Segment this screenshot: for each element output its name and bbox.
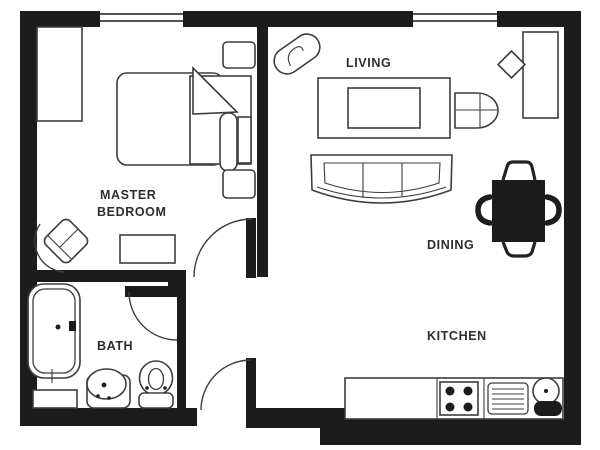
room-kitchen: KITCHEN — [345, 329, 563, 419]
wall-bottom-kitchen — [320, 419, 581, 445]
toilet-tank — [139, 393, 173, 408]
tub-faucet — [69, 321, 76, 331]
wall-top-middle — [183, 11, 413, 27]
bedroom-door — [194, 218, 256, 278]
nightstand-top — [223, 42, 255, 68]
label-dining: DINING — [427, 238, 474, 252]
burner — [446, 387, 455, 396]
stove — [440, 382, 478, 415]
bath-mat — [33, 390, 77, 408]
label-living: LIVING — [346, 56, 391, 70]
label-bath: BATH — [97, 339, 133, 353]
burner — [464, 403, 473, 412]
dining-chair-bottom — [503, 242, 535, 256]
drainer — [488, 383, 528, 414]
nightstand-bottom — [223, 170, 255, 198]
tub-drain — [56, 325, 61, 330]
burner — [446, 403, 455, 412]
pedestal-sink — [87, 369, 130, 408]
label-kitchen: KITCHEN — [427, 329, 487, 343]
bathroom-door — [125, 286, 180, 340]
bedroom-door-panel — [246, 218, 256, 278]
entry-door-panel — [246, 358, 256, 410]
label-master-bedroom-line1: MASTER — [100, 188, 156, 202]
room-bath: BATH — [28, 284, 173, 408]
bedroom-door-swing-arc — [194, 219, 252, 277]
sofa — [311, 155, 452, 203]
double-bed — [117, 68, 251, 171]
kitchen-sink — [533, 378, 562, 416]
bathroom-door-swing-arc — [129, 292, 177, 340]
bed-pillow — [220, 113, 237, 171]
living-armchair — [455, 93, 498, 128]
bedroom-armchair — [35, 217, 90, 272]
wall-bottom-bath — [20, 408, 197, 426]
wall-bedroom-bath — [20, 270, 180, 282]
ottoman — [120, 235, 175, 263]
dining-chair-right — [547, 197, 559, 223]
plant — [269, 29, 325, 79]
wall-right — [564, 11, 581, 445]
living-window — [413, 14, 497, 21]
label-master-bedroom-line2: BEDROOM — [97, 205, 166, 219]
desk — [523, 32, 558, 118]
burner — [464, 387, 473, 396]
floor-plan: MASTER BEDROOM LIVING — [0, 0, 600, 450]
entry-door — [201, 358, 256, 410]
dining-table — [492, 180, 545, 242]
bedroom-window — [100, 14, 183, 21]
closet — [37, 27, 82, 121]
dining-chair-left — [478, 197, 490, 223]
toilet — [139, 361, 173, 408]
bathroom-door-panel — [125, 286, 180, 297]
bed-headboard — [238, 117, 251, 163]
entry-door-swing-arc — [201, 360, 251, 410]
coffee-table — [318, 78, 450, 138]
floor-plan-drawing: MASTER BEDROOM LIVING — [0, 0, 600, 450]
wall-bath-right — [177, 288, 186, 408]
room-master-bedroom: MASTER BEDROOM — [35, 27, 255, 272]
wall-bedroom-living — [257, 27, 268, 277]
dining-chair-top — [503, 162, 535, 180]
bathtub — [28, 284, 80, 383]
desk-chair — [498, 51, 525, 78]
